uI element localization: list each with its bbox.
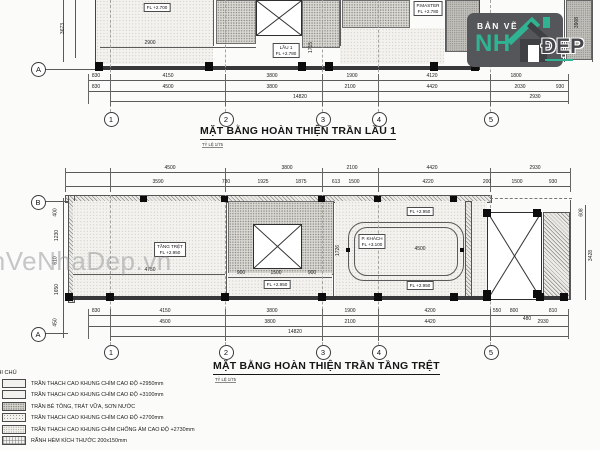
dim-label: 4500 (162, 85, 173, 90)
dimline (88, 80, 568, 81)
lau1-wall-left (95, 0, 96, 66)
legend-row: TRẦN THẠCH CAO KHUNG CHÌM CHỐNG ẨM CAO Đ… (2, 425, 195, 434)
legend-row: TRẦN THẠCH CAO KHUNG CHÌM CAO ĐỘ +3100mm (2, 390, 163, 399)
dim-label: 200 (483, 180, 491, 185)
dim-label: 1726 (336, 245, 341, 256)
dim-label: 2100 (346, 166, 357, 171)
column (298, 62, 306, 71)
dim-label: 1715 (309, 42, 314, 53)
logo-underline (545, 59, 573, 61)
dim-label: 4200 (424, 309, 435, 314)
tret-wall-m3 (465, 201, 472, 298)
plan-tret-scale: TỶ LỆ 1/75 (215, 377, 236, 383)
fl-value: FL +2.950 (410, 209, 431, 215)
dim-tick (322, 309, 323, 341)
drawing-sheet: FL +2.700 LẦU 1 FL +2.780 P.MASTER FL +2… (0, 0, 600, 450)
dim-tick (322, 168, 323, 192)
column (65, 293, 73, 301)
lau1-hatch-c (342, 0, 410, 28)
fl-value: FL +2.780 (276, 51, 297, 57)
tret-interior-dimline2 (228, 277, 332, 278)
dim-label: 900 (308, 271, 316, 276)
legend-swatch-plain (2, 390, 26, 399)
dim-label: 480 (523, 317, 531, 322)
column (483, 209, 491, 217)
column (106, 293, 114, 301)
tret-khach-label: P. KHÁCH FL +3.100 (358, 234, 385, 249)
fl-value: FL +3.100 (361, 242, 382, 248)
legend-label: TRẦN THẠCH CAO KHUNG CHÌM CAO ĐỘ +2950mm (31, 381, 163, 387)
dim-label: 1875 (295, 180, 306, 185)
legend-header: GHI CHÚ (0, 370, 17, 376)
dim-label: 550 (493, 309, 501, 314)
lau1-left-fl-label: FL +2.700 (144, 3, 171, 12)
column (533, 209, 541, 217)
dim-label: 3673 (61, 23, 66, 34)
dim-label: 4220 (422, 180, 433, 185)
dim-label: 1500 (348, 180, 359, 185)
grid-number: 1 (109, 348, 113, 357)
legend-label: TRẦN BÊ TÔNG, TRÁT VỮA, SƠN NƯỚC (31, 404, 135, 410)
lau1-wall-m3 (445, 0, 446, 52)
grid-number: 5 (489, 348, 493, 357)
dim-tick (570, 168, 571, 192)
dim-tick (88, 309, 89, 339)
legend-row: TRẦN THẠCH CAO KHUNG CHÌM CAO ĐỘ +2700mm (2, 413, 163, 422)
legend-swatch-dots (2, 425, 26, 434)
dim-tick (110, 168, 111, 192)
column (533, 290, 541, 298)
legend-row: RÃNH HÈM KÍCH THƯỚC 200x150mm (2, 436, 127, 445)
grid-bubble-1: 1 (104, 345, 119, 360)
grid-number: 4 (377, 115, 381, 124)
dim-label: 2930 (529, 95, 540, 100)
grid-bubble-b: B (31, 195, 46, 210)
grid-leader-a (45, 69, 95, 70)
dim-label: 4120 (426, 74, 437, 79)
x-cross-icon (488, 213, 541, 299)
column (483, 290, 491, 298)
tret-void-x (487, 212, 542, 300)
dim-label: 3800 (266, 309, 277, 314)
dim-tick (378, 309, 379, 341)
fl-value: FL +2.780 (417, 9, 440, 15)
dim-tick (378, 168, 379, 192)
dim-tick (568, 74, 569, 104)
dim-label: 810 (549, 309, 557, 314)
x-cross-icon (257, 1, 301, 35)
tret-fl-top: FL +2.950 (407, 207, 434, 216)
cove-anchor (460, 248, 464, 252)
dim-label: 4500 (414, 247, 425, 252)
dim-label: 1500 (270, 271, 281, 276)
dim-label: 3590 (152, 180, 163, 185)
column (95, 62, 103, 71)
dim-tick (88, 74, 89, 104)
dimline (65, 186, 570, 187)
legend-swatch-dots (2, 413, 26, 422)
grid-number: 5 (489, 115, 493, 124)
dim-tick (378, 74, 379, 106)
dim-label: 2100 (344, 320, 355, 325)
grid-bubble-1: 1 (104, 112, 119, 127)
dim-label: 730 (222, 180, 230, 185)
plan-tret-title: MẶT BẰNG HOÀN THIỆN TRẦN TẦNG TRỆT (213, 360, 440, 375)
dim-label: 450 (54, 318, 59, 326)
plan-lau1-title: MẶT BẰNG HOÀN THIỆN TRẦN LẦU 1 (200, 125, 396, 140)
dimline-vertical (75, 0, 76, 58)
legend: GHI CHÚ TRẦN THẠCH CAO KHUNG CHÌM CAO ĐỘ… (0, 368, 230, 450)
watermark-text: BanVeNhaDep.vn (0, 246, 172, 277)
lau1-room-right-fill (340, 28, 444, 64)
tret-fl-bottom: FL +2.950 (407, 281, 434, 290)
column (560, 293, 568, 301)
dim-label: 1230 (55, 230, 60, 241)
grid-number: 1 (109, 115, 113, 124)
plan-lau1-scale: TỶ LỆ 1/75 (202, 142, 223, 148)
dim-tick (225, 309, 226, 341)
tret-line-r (570, 200, 571, 300)
grid-letter: B (35, 198, 40, 207)
grid-number: 4 (377, 348, 381, 357)
grid-bubble-a: A (31, 327, 46, 342)
grid-leader-b (44, 201, 68, 202)
grid-letter: A (36, 65, 41, 74)
dim-label: 3800 (266, 85, 277, 90)
tret-boundary-dashline (490, 198, 572, 199)
tret-wall-m2 (333, 201, 334, 296)
dim-label: 14820 (288, 330, 302, 335)
legend-swatch-plain (2, 379, 26, 388)
dim-label: 3428 (589, 250, 594, 261)
column (221, 196, 228, 202)
tret-wall-m1 (226, 201, 227, 296)
dim-label: 930 (549, 180, 557, 185)
lau1-center-label: LẦU 1 FL +2.780 (273, 43, 300, 58)
dim-label: 4420 (424, 320, 435, 325)
grid-bubble-5: 5 (484, 112, 499, 127)
dim-label: 613 (332, 180, 340, 185)
dim-label: 1900 (346, 74, 357, 79)
dim-label: 4500 (159, 320, 170, 325)
column (325, 62, 333, 71)
fl-value: FL +2.950 (410, 283, 431, 289)
dim-label: 1925 (257, 180, 268, 185)
dim-label: 1800 (510, 74, 521, 79)
lau1-wall-m2 (340, 0, 341, 46)
dim-tick (490, 309, 491, 341)
dim-label: 800 (510, 309, 518, 314)
dim-label: 2930 (529, 166, 540, 171)
logo-text-dep: ĐẸP (541, 35, 584, 59)
dim-label: 4420 (426, 85, 437, 90)
dim-label: 830 (92, 85, 100, 90)
dimline (110, 336, 568, 337)
column (318, 196, 325, 202)
dim-label: 3908 (575, 17, 580, 28)
dimline-vertical (585, 205, 586, 300)
cove-anchor (346, 248, 350, 252)
dim-label: 4150 (162, 74, 173, 79)
legend-swatch-concrete (2, 402, 26, 411)
grid-bubble-a: A (31, 62, 46, 77)
dimline (110, 101, 568, 102)
lau1-elevator-shaft (256, 0, 302, 36)
grid-bubble-2: 2 (219, 345, 234, 360)
dim-label: 830 (92, 74, 100, 79)
grid-number: 2 (224, 115, 228, 124)
column (318, 293, 326, 301)
x-cross-icon (254, 225, 301, 268)
grid-bubble-3: 3 (316, 345, 331, 360)
column (450, 293, 458, 301)
lau1-hatch-a (216, 0, 256, 44)
lau1-hatch-b (302, 0, 340, 48)
legend-label: TRẦN THẠCH CAO KHUNG CHÌM CAO ĐỘ +2700mm (31, 415, 163, 421)
column (140, 196, 147, 202)
dim-tick (110, 74, 111, 106)
dim-label: 608 (580, 208, 585, 216)
dim-label: 2100 (344, 85, 355, 90)
legend-row: TRẦN THẠCH CAO KHUNG CHÌM CAO ĐỘ +2950mm (2, 379, 163, 388)
column (205, 62, 213, 71)
dim-label: 3800 (266, 74, 277, 79)
dim-tick (490, 74, 491, 106)
dimline (88, 91, 568, 92)
fl-value: FL +2.700 (147, 5, 168, 11)
legend-label: TRẦN THẠCH CAO KHUNG CHÌM CAO ĐỘ +3100mm (31, 392, 163, 398)
lau1-interior-dimline (100, 47, 256, 48)
dim-label: 1650 (55, 284, 60, 295)
dim-label: 4420 (426, 166, 437, 171)
fl-value: FL +2.950 (267, 282, 288, 288)
dim-label: 4150 (159, 309, 170, 314)
dim-label: 930 (556, 85, 564, 90)
legend-label: TRẦN THẠCH CAO KHUNG CHÌM CHỐNG ẨM CAO Đ… (31, 427, 195, 433)
tret-elevator-shaft (253, 224, 302, 269)
tret-fl-mid: FL +2.950 (264, 280, 291, 289)
lau1-strip-line-r (592, 0, 593, 62)
dim-tick (225, 74, 226, 106)
column (450, 196, 457, 202)
dim-label: 1500 (511, 180, 522, 185)
dimline (65, 172, 570, 173)
dim-label: 2930 (537, 320, 548, 325)
dim-label: 2030 (514, 85, 525, 90)
dim-label: 2900 (144, 41, 155, 46)
grid-letter: A (35, 330, 40, 339)
tret-hatch-strip (543, 212, 570, 300)
dim-label: 3800 (281, 166, 292, 171)
dimline (88, 315, 568, 316)
dim-label: 400 (54, 208, 59, 216)
lau1-master-label: P.MASTER FL +2.780 (414, 1, 443, 16)
dim-tick (65, 168, 66, 192)
grid-leader-a (44, 333, 68, 334)
grid-number: 3 (321, 115, 325, 124)
legend-label: RÃNH HÈM KÍCH THƯỚC 200x150mm (31, 438, 127, 444)
dim-label: 1900 (344, 309, 355, 314)
logo-text-nh: NH (475, 30, 511, 58)
room-name: P.MASTER (417, 3, 440, 9)
lau1-wall-m1 (213, 0, 214, 46)
grid-bubble-5: 5 (484, 345, 499, 360)
dim-label: 830 (92, 309, 100, 314)
lau1-bottom-wall (95, 66, 480, 70)
dim-tick (110, 309, 111, 341)
dim-label: 14820 (293, 95, 307, 100)
dim-tick (322, 74, 323, 106)
room-name: P. KHÁCH (361, 236, 382, 242)
column (430, 62, 438, 71)
legend-swatch-grid (2, 436, 26, 445)
grid-number: 2 (224, 348, 228, 357)
column (221, 293, 229, 301)
dim-label: 3800 (264, 320, 275, 325)
grid-number: 3 (321, 348, 325, 357)
dimline (88, 326, 568, 327)
dim-label: 4500 (164, 166, 175, 171)
dim-label: 900 (237, 271, 245, 276)
dim-tick (568, 309, 569, 339)
column (374, 196, 381, 202)
legend-row: TRẦN BÊ TÔNG, TRÁT VỮA, SƠN NƯỚC (2, 402, 135, 411)
column (374, 293, 382, 301)
grid-bubble-4: 4 (372, 345, 387, 360)
